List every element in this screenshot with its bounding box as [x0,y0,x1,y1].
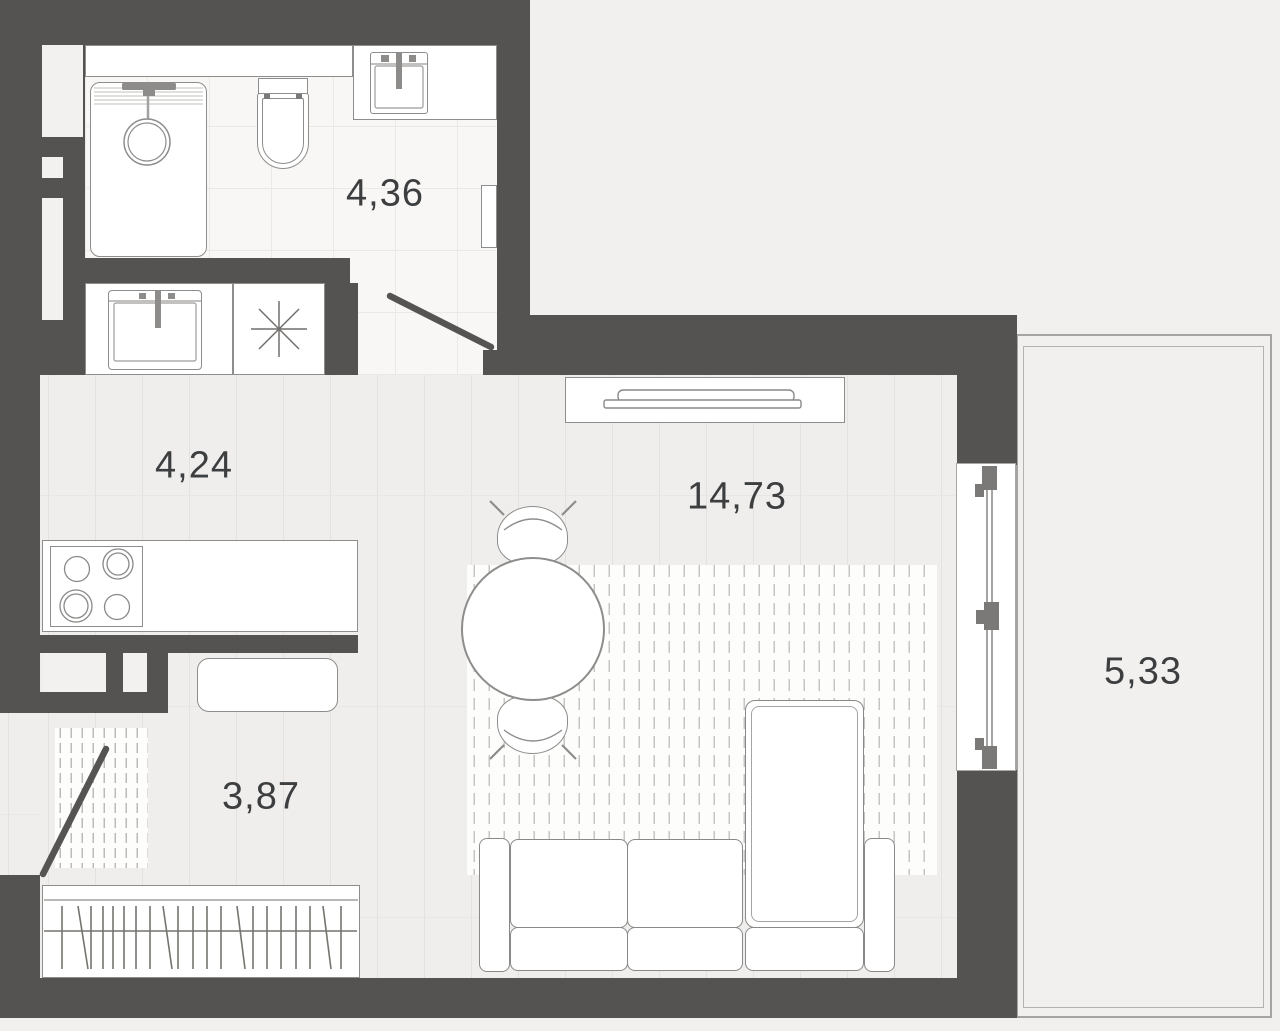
toilet-tank [258,78,308,94]
sofa-chaise-cushion [751,706,858,922]
wall-niche [42,45,83,137]
hall-cabinet [197,658,338,712]
kitchen-sink [108,290,202,370]
floor-plan: 4,36 4,24 14,73 3,87 5,33 [0,0,1280,1031]
wall-niche [123,653,147,692]
wall [325,283,358,375]
wardrobe [42,885,360,978]
sofa-seat-1 [510,839,628,928]
toilet-hinge-right [296,94,302,99]
wall-niche [42,653,106,692]
wall [957,375,1017,465]
kitchen-area-label: 4,24 [155,445,233,488]
wall [483,350,530,375]
chair-bottom [497,695,568,754]
wall [35,635,358,653]
wall [0,875,40,978]
wall [0,978,1017,1018]
sofa-armrest-right [864,838,895,972]
wall [106,653,123,693]
washing-machine [233,283,325,375]
sofa-chaise [745,700,864,928]
sofa-chaise-front [745,927,864,971]
wall [0,45,40,713]
entry-door-opening [0,713,40,875]
sofa-front-2 [627,927,743,971]
toilet-hinge-left [264,94,270,99]
wall [35,258,350,283]
wall [40,692,168,713]
bathroom-sink [370,52,428,114]
bathtub [90,82,207,257]
sofa-seat-2 [627,839,743,928]
hall-area-label: 3,87 [222,776,300,819]
round-table [461,557,605,701]
balcony-area-label: 5,33 [1104,651,1182,694]
wall-niche [42,157,63,178]
wall [497,315,1017,375]
wall [497,45,530,315]
toilet-bowl-inner [262,98,304,164]
sofa-front-1 [510,927,628,971]
bathroom-area-label: 4,36 [346,173,424,216]
wall-shaft [481,185,497,248]
stove [50,546,143,627]
sofa-armrest-left [479,838,510,972]
living-area-label: 14,73 [687,476,787,519]
wall [147,653,168,693]
wall [0,0,530,45]
tv-console [565,377,845,423]
balcony-window [956,463,1016,771]
bathroom-shelf [85,45,353,77]
hallway-rug [55,728,148,868]
wall-niche [42,247,63,320]
